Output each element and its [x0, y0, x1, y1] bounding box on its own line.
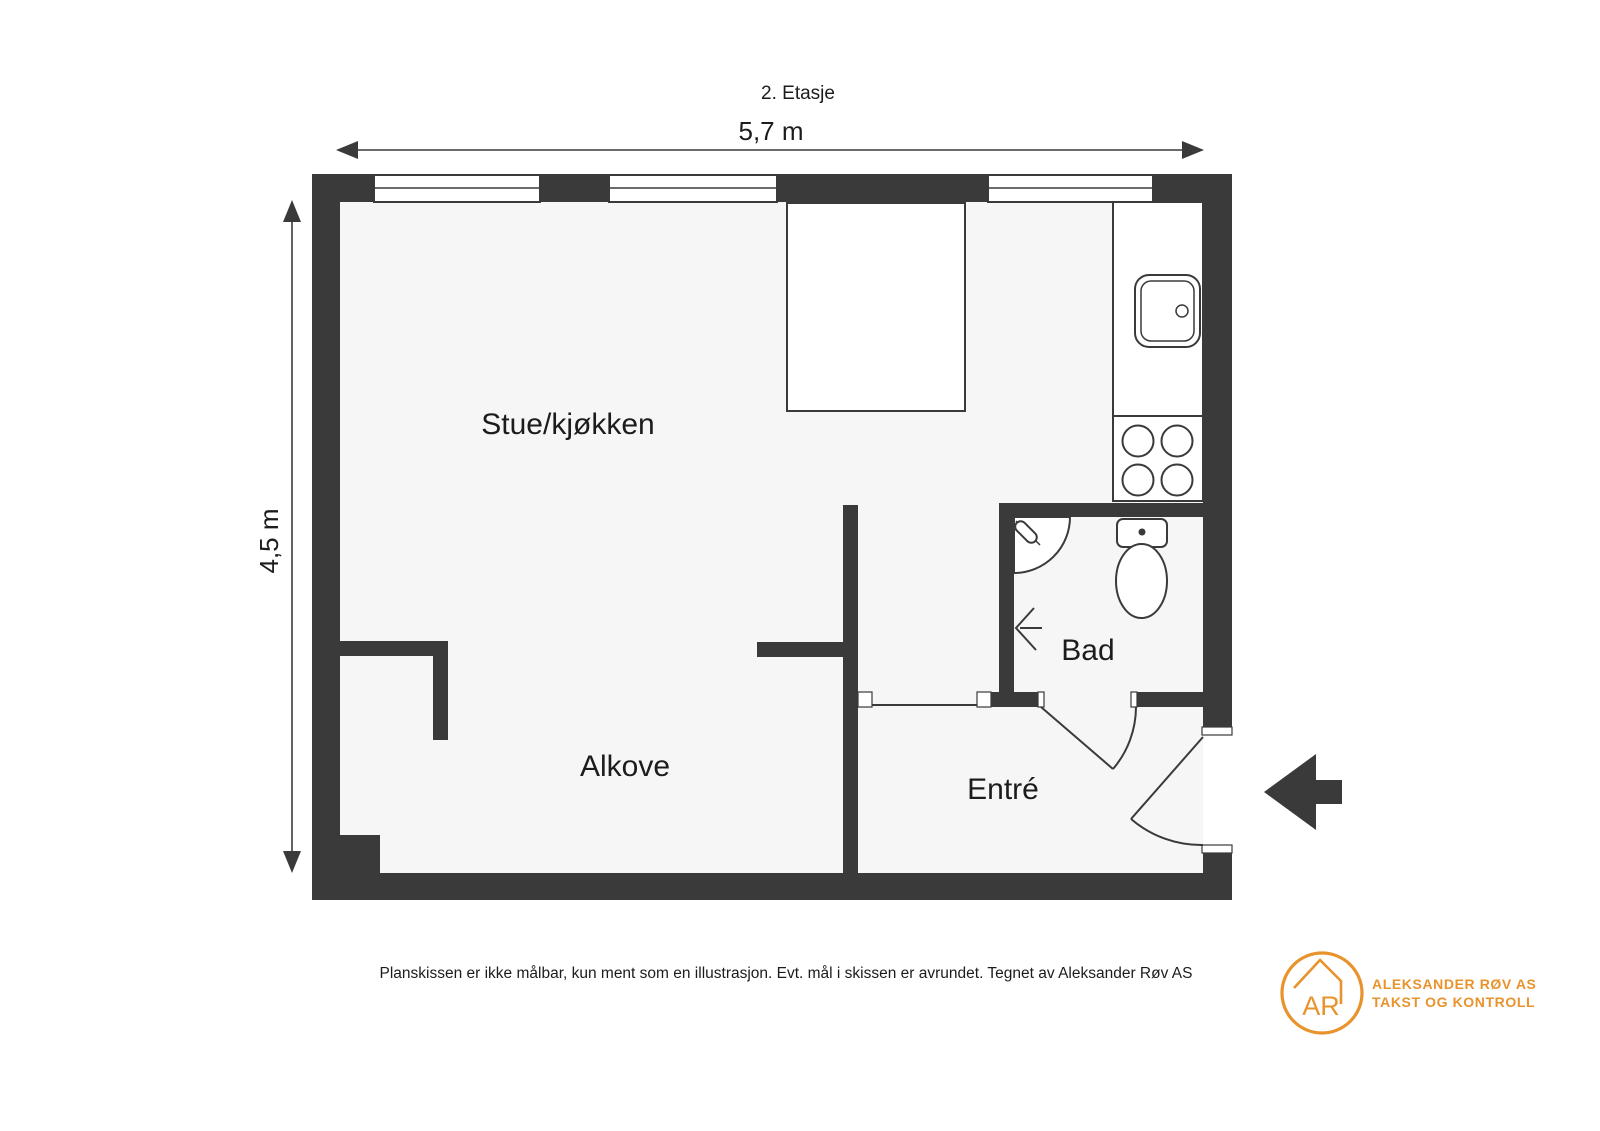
room-label-entrance: Entré — [967, 773, 1039, 806]
disclaimer-text: Planskissen er ikke målbar, kun ment som… — [380, 965, 1193, 982]
logo-company-name: ALEKSANDER RØV AS — [1372, 976, 1536, 992]
jamb-passage-right — [977, 692, 991, 707]
entry-arrow-icon — [1264, 754, 1342, 830]
dimension-height: 4,5 m — [254, 200, 301, 873]
kitchen-fixtures — [1113, 202, 1203, 501]
jamb-bath-right — [1131, 692, 1137, 707]
wall-bottom — [312, 873, 1232, 900]
burner-icon — [1123, 465, 1154, 496]
wall-right-upper — [1203, 174, 1232, 735]
wall-central-vertical — [843, 505, 858, 873]
wall-entre-top-b — [1137, 692, 1203, 707]
floor-title: 2. Etasje — [761, 83, 835, 104]
room-label-bathroom: Bad — [1061, 634, 1114, 667]
logo-company-tagline: TAKST OG KONTROLL — [1372, 994, 1535, 1010]
logo-monogram: AR — [1302, 991, 1340, 1021]
window-icon — [609, 175, 777, 202]
jamb-bath-left — [1038, 692, 1044, 707]
jamb-entry-bottom — [1202, 845, 1232, 853]
wall-corner-step — [340, 835, 380, 873]
company-logo: AR ALEKSANDER RØV AS TAKST OG KONTROLL — [1282, 953, 1536, 1033]
dimension-width: 5,7 m — [336, 116, 1204, 159]
stove-icon — [1113, 416, 1203, 501]
wall-bath-top — [999, 503, 1203, 517]
width-dimension-label: 5,7 m — [738, 116, 803, 146]
burner-icon — [1162, 465, 1193, 496]
wall-alcove-vertical — [433, 641, 448, 740]
floorplan-drawing: 5,7 m 4,5 m 2. Etasje Stue/kjøkken Alkov… — [0, 0, 1600, 1131]
room-label-living-kitchen: Stue/kjøkken — [481, 408, 654, 441]
window-icon — [374, 175, 540, 202]
wall-stub-living — [757, 642, 843, 657]
burner-icon — [1123, 426, 1154, 457]
wall-alcove-horizontal — [340, 641, 448, 656]
kitchen-sink-icon — [1135, 275, 1200, 347]
windows — [374, 175, 1153, 202]
jamb-passage-left — [858, 692, 872, 707]
wall-bath-left — [999, 503, 1014, 693]
floor-area — [340, 202, 1203, 873]
jamb-entry-top — [1202, 727, 1232, 735]
room-label-alcove: Alkove — [580, 750, 670, 783]
height-dimension-label: 4,5 m — [254, 508, 284, 573]
floorplan-page: 5,7 m 4,5 m 2. Etasje Stue/kjøkken Alkov… — [0, 0, 1600, 1131]
bed-icon — [787, 203, 965, 411]
toilet-icon — [1116, 519, 1167, 618]
window-icon — [988, 175, 1153, 202]
wall-left — [312, 174, 340, 900]
wall-entre-top-a — [991, 692, 1038, 707]
burner-icon — [1162, 426, 1193, 457]
